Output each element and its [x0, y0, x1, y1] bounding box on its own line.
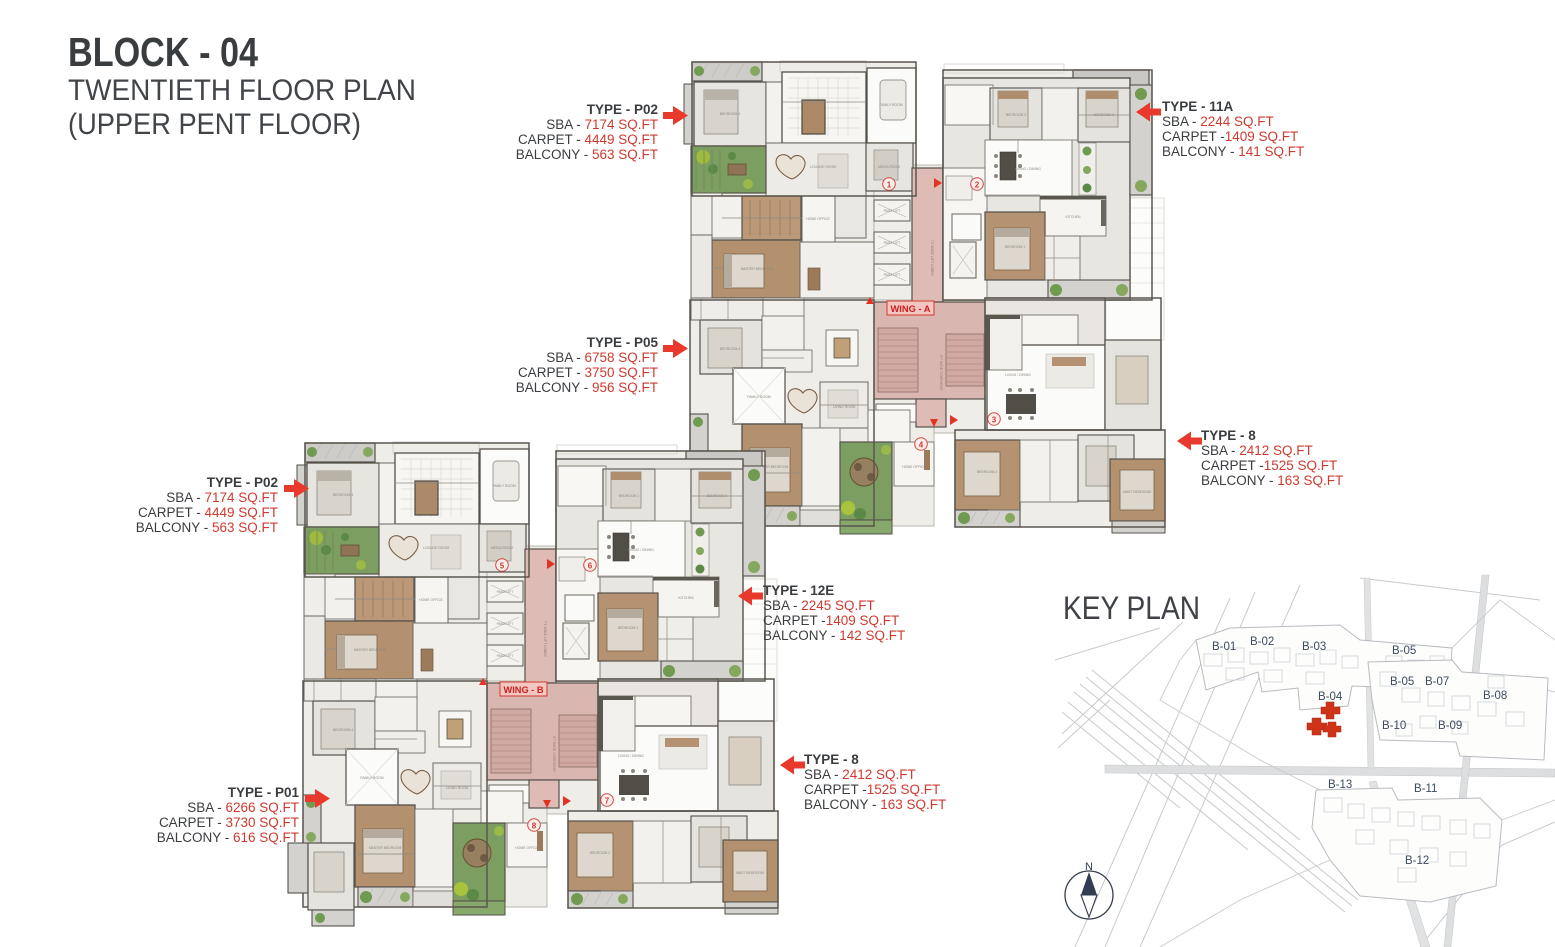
- svg-text:BALCONY - 616 SQ.FT: BALCONY - 616 SQ.FT: [157, 830, 299, 845]
- svg-text:B-03: B-03: [1302, 641, 1326, 653]
- svg-text:B-05: B-05: [1390, 676, 1414, 688]
- svg-text:CARPET - 3730 SQ.FT: CARPET - 3730 SQ.FT: [159, 815, 299, 830]
- svg-text:CARPET - 4449 SQ.FT: CARPET - 4449 SQ.FT: [518, 132, 658, 147]
- svg-text:B-01: B-01: [1212, 641, 1236, 653]
- svg-text:BALCONY - 163 SQ.FT: BALCONY - 163 SQ.FT: [1201, 473, 1343, 488]
- svg-text:TYPE - 12E: TYPE - 12E: [763, 583, 834, 598]
- svg-text:TYPE - 11A: TYPE - 11A: [1162, 99, 1234, 114]
- svg-text:B-08: B-08: [1483, 690, 1507, 702]
- svg-text:TYPE - P05: TYPE - P05: [587, 335, 659, 350]
- svg-text:TYPE - 8: TYPE - 8: [1201, 428, 1256, 443]
- svg-text:CARPET - 4449 SQ.FT: CARPET - 4449 SQ.FT: [138, 505, 278, 520]
- svg-text:CARPET -1525 SQ.FT: CARPET -1525 SQ.FT: [804, 782, 940, 797]
- svg-text:B-11: B-11: [1414, 783, 1437, 795]
- svg-text:SBA - 7174 SQ.FT: SBA - 7174 SQ.FT: [166, 490, 278, 505]
- svg-text:SBA - 2244 SQ.FT: SBA - 2244 SQ.FT: [1162, 114, 1274, 129]
- svg-text:B-05: B-05: [1392, 645, 1416, 657]
- svg-text:SBA - 6758 SQ.FT: SBA - 6758 SQ.FT: [546, 350, 658, 365]
- svg-text:4: 4: [919, 441, 924, 450]
- svg-text:BALCONY - 563 SQ.FT: BALCONY - 563 SQ.FT: [516, 147, 658, 162]
- svg-text:BALCONY - 141 SQ.FT: BALCONY - 141 SQ.FT: [1162, 144, 1304, 159]
- svg-text:WING - A: WING - A: [891, 304, 931, 315]
- svg-text:B-12: B-12: [1405, 855, 1429, 867]
- svg-text:B-07: B-07: [1425, 676, 1449, 688]
- svg-text:TYPE - P02: TYPE - P02: [207, 475, 278, 490]
- svg-text:(UPPER PENT FLOOR): (UPPER PENT FLOOR): [68, 108, 361, 141]
- svg-text:B-04: B-04: [1318, 691, 1343, 703]
- svg-text:B-09: B-09: [1438, 720, 1462, 732]
- svg-text:3: 3: [992, 416, 997, 425]
- svg-text:CARPET - 3750 SQ.FT: CARPET - 3750 SQ.FT: [518, 365, 658, 380]
- svg-text:6: 6: [588, 562, 593, 571]
- svg-text:B-10: B-10: [1382, 720, 1406, 732]
- svg-text:TWENTIETH FLOOR PLAN: TWENTIETH FLOOR PLAN: [68, 74, 416, 107]
- svg-text:N: N: [1085, 861, 1093, 873]
- svg-text:7: 7: [605, 797, 610, 806]
- svg-text:KEY PLAN: KEY PLAN: [1063, 590, 1200, 626]
- svg-text:SBA - 2412 SQ.FT: SBA - 2412 SQ.FT: [1201, 443, 1313, 458]
- svg-text:5: 5: [500, 562, 505, 571]
- svg-text:TYPE - 8: TYPE - 8: [804, 752, 859, 767]
- svg-text:SBA - 2412 SQ.FT: SBA - 2412 SQ.FT: [804, 767, 916, 782]
- svg-text:CARPET -1525 SQ.FT: CARPET -1525 SQ.FT: [1201, 458, 1337, 473]
- svg-text:CARPET -1409 SQ.FT: CARPET -1409 SQ.FT: [1162, 129, 1298, 144]
- svg-text:BALCONY - 142 SQ.FT: BALCONY - 142 SQ.FT: [763, 628, 905, 643]
- svg-text:BALCONY - 956 SQ.FT: BALCONY - 956 SQ.FT: [516, 380, 658, 395]
- svg-text:2: 2: [975, 181, 980, 190]
- svg-text:SBA - 7174 SQ.FT: SBA - 7174 SQ.FT: [546, 117, 658, 132]
- svg-text:SBA - 2245 SQ.FT: SBA - 2245 SQ.FT: [763, 598, 875, 613]
- svg-text:8: 8: [532, 822, 537, 831]
- svg-text:BLOCK - 04: BLOCK - 04: [68, 29, 258, 75]
- svg-text:BALCONY - 163 SQ.FT: BALCONY - 163 SQ.FT: [804, 797, 946, 812]
- svg-text:WING - B: WING - B: [504, 685, 544, 696]
- svg-text:1: 1: [887, 181, 892, 190]
- svg-text:BALCONY - 563 SQ.FT: BALCONY - 563 SQ.FT: [136, 520, 278, 535]
- svg-text:B-02: B-02: [1250, 636, 1274, 648]
- svg-text:TYPE - P02: TYPE - P02: [587, 102, 658, 117]
- svg-text:B-13: B-13: [1328, 779, 1352, 791]
- svg-text:CARPET -1409 SQ.FT: CARPET -1409 SQ.FT: [763, 613, 899, 628]
- svg-text:SBA - 6266 SQ.FT: SBA - 6266 SQ.FT: [187, 800, 299, 815]
- svg-text:TYPE - P01: TYPE - P01: [228, 785, 300, 800]
